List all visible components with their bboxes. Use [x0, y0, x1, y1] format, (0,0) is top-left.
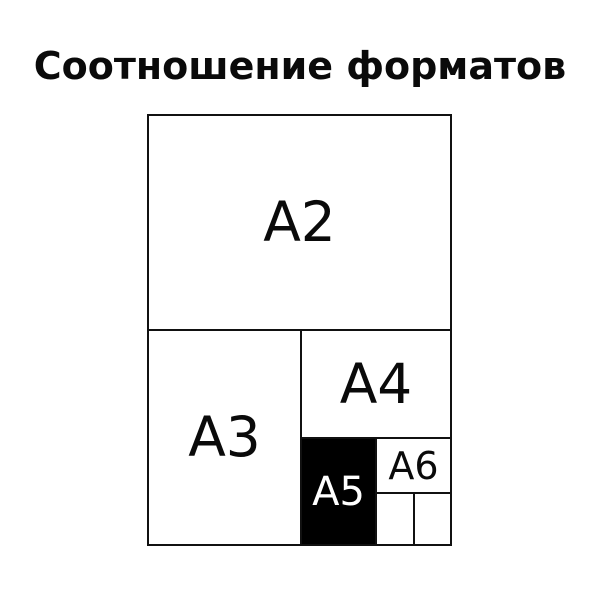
- format-a6-label: A6: [388, 447, 438, 485]
- format-a5-label: A5: [312, 472, 365, 512]
- format-a4-label: A4: [340, 357, 413, 412]
- format-a6-cell: A6: [377, 439, 450, 494]
- right-column: A4 A5 A6: [302, 331, 450, 544]
- format-a3-cell: A3: [149, 331, 302, 544]
- subdivision-right-cell: [415, 494, 451, 544]
- format-a2-cell: A2: [149, 116, 450, 331]
- format-a5-cell: A5: [302, 439, 377, 544]
- a6-column: A6: [377, 439, 450, 544]
- lower-row: A5 A6: [302, 439, 450, 544]
- format-a4-cell: A4: [302, 331, 450, 439]
- format-comparison-diagram: A2 A3 A4 A5 A6: [147, 114, 452, 546]
- subdivision-row: [377, 494, 450, 544]
- bottom-half: A3 A4 A5 A6: [149, 331, 450, 544]
- format-a2-label: A2: [263, 195, 336, 250]
- subdivision-left-cell: [377, 494, 415, 544]
- page-title: Соотношение форматов: [0, 44, 600, 88]
- format-a3-label: A3: [188, 410, 261, 465]
